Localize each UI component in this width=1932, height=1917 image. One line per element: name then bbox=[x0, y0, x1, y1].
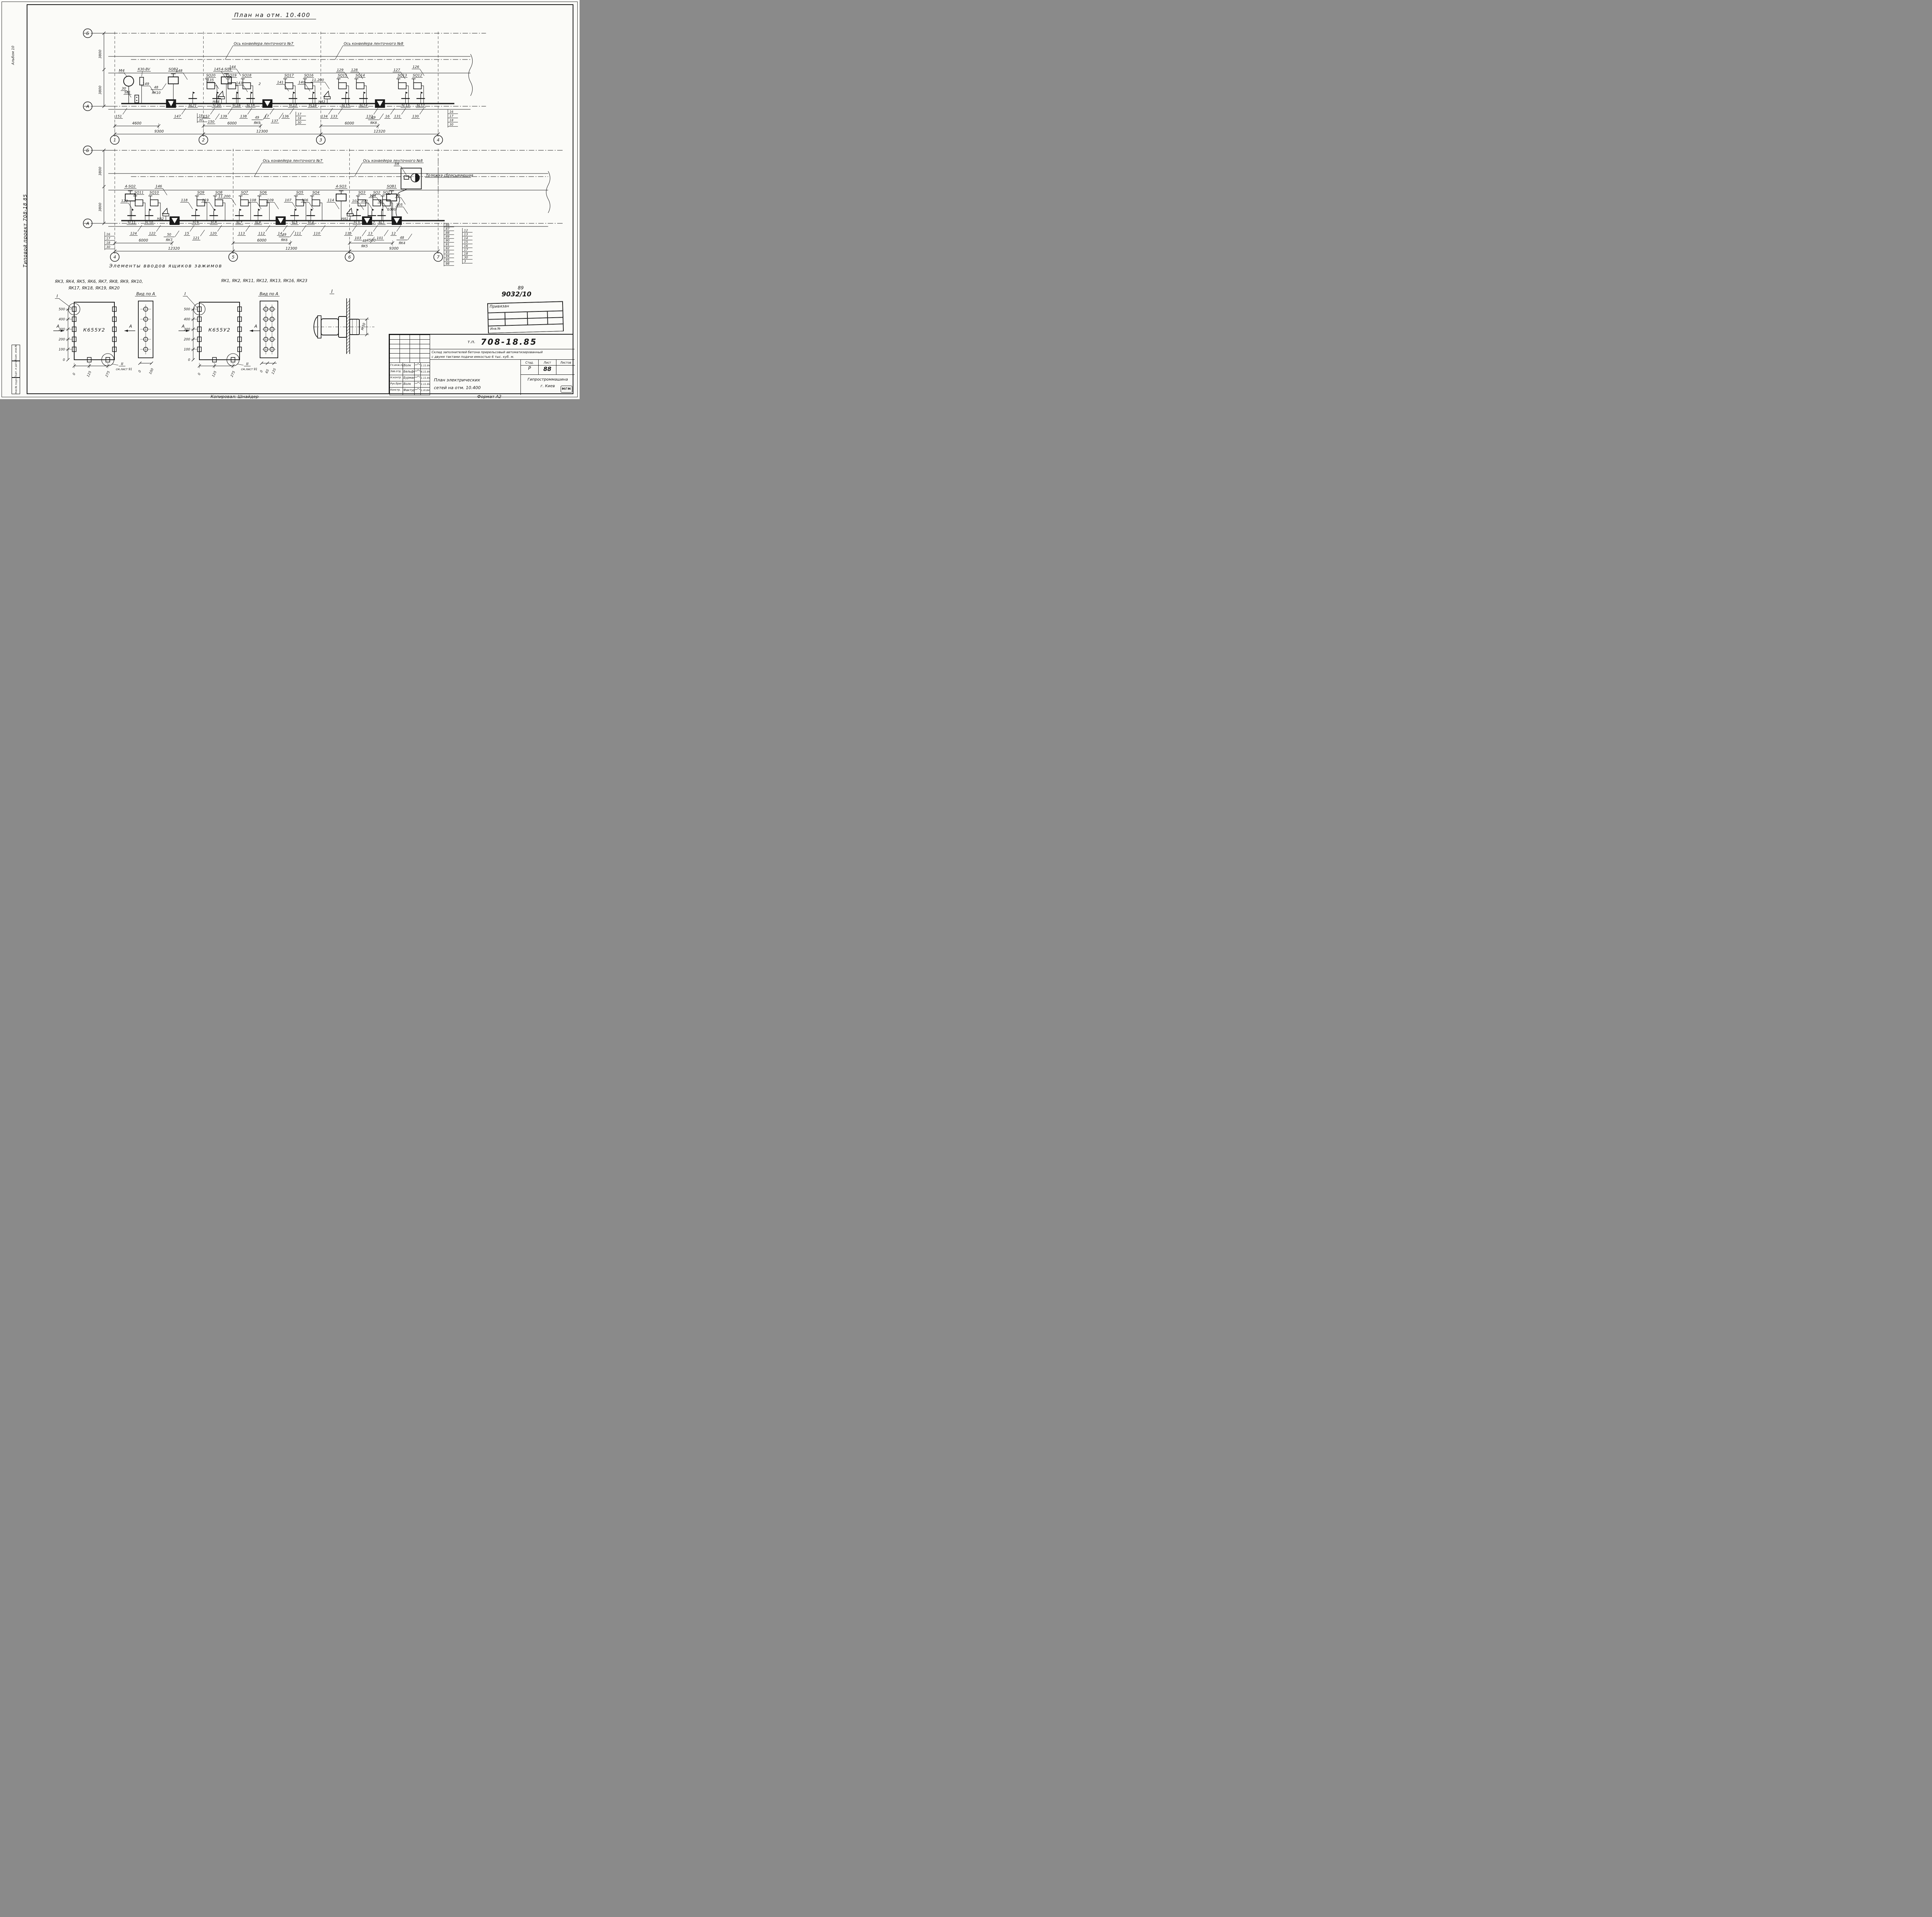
dimension-12300: 12300 bbox=[231, 247, 351, 254]
svg-text:SL11: SL11 bbox=[128, 221, 136, 225]
stage-sheet-table: Стад. Лист Листов Р 88 bbox=[520, 360, 575, 375]
sig-name: Фактурович bbox=[403, 387, 415, 395]
binding-stamp: ПривязанИнв.№ bbox=[487, 301, 564, 333]
svg-text:4: 4 bbox=[114, 255, 116, 260]
sheets-value bbox=[556, 366, 575, 375]
svg-text:49: 49 bbox=[282, 233, 286, 237]
svg-text:3800: 3800 bbox=[99, 202, 102, 211]
device-SL4: SL4 bbox=[306, 209, 315, 225]
svg-text:0: 0 bbox=[188, 358, 190, 362]
svg-text:SQ20: SQ20 bbox=[206, 74, 216, 78]
svg-text:К30-ВV: К30-ВV bbox=[138, 68, 151, 71]
row-dimension: 38003800 bbox=[99, 32, 105, 108]
project-description: Склад заполнителей бетона прирельсовый а… bbox=[430, 349, 575, 360]
code-prefix: т.п. bbox=[468, 339, 476, 344]
svg-text:SL7: SL7 bbox=[236, 221, 242, 225]
stamp-cell bbox=[488, 312, 505, 319]
svg-text:II: II bbox=[121, 362, 123, 366]
svg-text:100: 100 bbox=[184, 348, 190, 352]
revision-cell bbox=[410, 349, 420, 354]
svg-text:SL21: SL21 bbox=[189, 104, 197, 108]
svg-text:147: 147 bbox=[174, 115, 181, 119]
svg-text:108: 108 bbox=[250, 199, 256, 202]
svg-text:30: 30 bbox=[199, 118, 202, 122]
drawing-view-title: План на отм. 10.400 bbox=[232, 12, 316, 19]
svg-text:17: 17 bbox=[464, 248, 468, 252]
callout-147: 147 bbox=[173, 108, 186, 119]
svg-text:14: 14 bbox=[278, 232, 282, 236]
device-SL6: SL6 bbox=[254, 209, 262, 225]
svg-text:4-SQ2: 4-SQ2 bbox=[125, 185, 136, 189]
svg-text:0: 0 bbox=[72, 373, 77, 376]
revision-cell bbox=[410, 339, 420, 344]
svg-text:Вид по А: Вид по А bbox=[136, 292, 155, 296]
callout-141: 141 bbox=[276, 81, 289, 91]
svg-text:Б: Б bbox=[86, 31, 89, 36]
wire-number-stack: 171830 bbox=[296, 112, 306, 126]
svg-text:SL12: SL12 bbox=[417, 104, 425, 108]
break-line bbox=[469, 54, 473, 96]
svg-text:122: 122 bbox=[149, 232, 155, 236]
callout-139: 139 bbox=[219, 108, 232, 119]
svg-text:49: 49 bbox=[371, 116, 376, 120]
svg-text:Элементы вводов ящиков зажимов: Элементы вводов ящиков зажимов bbox=[109, 263, 223, 269]
device-ЯК6 bbox=[276, 216, 286, 225]
svg-text:106: 106 bbox=[302, 199, 308, 202]
svg-text:137: 137 bbox=[272, 119, 278, 123]
svg-text:К655У2: К655У2 bbox=[83, 327, 105, 333]
svg-text:М30: М30 bbox=[361, 322, 367, 331]
svg-text:SQ12: SQ12 bbox=[413, 74, 422, 78]
svg-text:400: 400 bbox=[59, 318, 65, 321]
device-SQ13: SQ13 bbox=[396, 74, 408, 104]
callout-122: 122 bbox=[148, 225, 160, 236]
svg-text:А: А bbox=[86, 221, 89, 226]
svg-text:110: 110 bbox=[314, 232, 320, 236]
svg-text:150: 150 bbox=[208, 120, 214, 124]
callout-11.200: 11.200 bbox=[311, 78, 329, 89]
svg-text:SL16: SL16 bbox=[309, 104, 317, 108]
device-SQ12: SQ12 bbox=[412, 74, 423, 104]
row-dimension: 38003800 bbox=[99, 149, 105, 225]
svg-text:SL20: SL20 bbox=[213, 104, 221, 108]
dimension-12320: 12320 bbox=[319, 129, 440, 137]
revision-cell bbox=[389, 339, 400, 344]
svg-text:Тележка сбрасывающая: Тележка сбрасывающая bbox=[426, 173, 473, 178]
svg-text:93: 93 bbox=[446, 250, 449, 254]
callout-114: 114 bbox=[327, 199, 339, 209]
gland-detail: IМ30 bbox=[313, 289, 374, 354]
svg-text:200: 200 bbox=[59, 338, 65, 342]
svg-text:SQ14: SQ14 bbox=[355, 74, 365, 78]
svg-text:SL14: SL14 bbox=[359, 104, 367, 108]
svg-text:см.лист 91: см.лист 91 bbox=[241, 367, 257, 371]
svg-text:0: 0 bbox=[260, 370, 264, 373]
svg-text:133: 133 bbox=[331, 115, 337, 119]
callout-13: 13 bbox=[367, 225, 378, 236]
wire-number-stack: 8687888990919293949598 bbox=[444, 223, 454, 266]
signature-scribble bbox=[414, 369, 421, 375]
terminal-box-details: Элементы вводов ящиков зажимовЯК3, ЯК4, … bbox=[27, 261, 398, 395]
svg-text:А: А bbox=[86, 104, 89, 109]
svg-text:400: 400 bbox=[184, 318, 190, 321]
plan-strip-2: БА380038004567Ось конвейера ленточного №… bbox=[27, 144, 573, 268]
svg-text:90: 90 bbox=[446, 239, 449, 242]
svg-text:SL9: SL9 bbox=[192, 221, 199, 225]
device-SL19: SL19 bbox=[231, 92, 241, 108]
svg-text:0: 0 bbox=[63, 358, 65, 362]
device-SL10: SL10 bbox=[144, 209, 154, 225]
svg-text:95: 95 bbox=[446, 258, 449, 262]
break-line bbox=[546, 171, 550, 213]
callout-137: 137 bbox=[271, 113, 283, 123]
svg-text:SL19: SL19 bbox=[232, 104, 240, 108]
svg-text:30: 30 bbox=[106, 245, 110, 249]
svg-text:146: 146 bbox=[155, 185, 162, 189]
callout-107: 107 bbox=[284, 199, 296, 209]
device-ЯК10 bbox=[166, 99, 176, 108]
svg-text:3800: 3800 bbox=[99, 85, 102, 94]
callout-112: 112 bbox=[257, 225, 270, 236]
svg-text:13: 13 bbox=[464, 233, 468, 236]
svg-text:88: 88 bbox=[446, 231, 449, 235]
organization: Гипростроммашина г. Киев МГМ bbox=[520, 375, 575, 395]
svg-text:18: 18 bbox=[106, 241, 110, 245]
yak-group-list-1: ЯК3, ЯК4, ЯК5, ЯК6, ЯК7, ЯК8, ЯК9, ЯК10,… bbox=[54, 279, 143, 291]
revision-cell bbox=[410, 353, 420, 358]
sig-role: Рук.бриг. bbox=[389, 381, 403, 388]
svg-text:НА3: НА3 bbox=[318, 100, 325, 104]
svg-text:140: 140 bbox=[298, 81, 305, 85]
svg-text:134: 134 bbox=[321, 115, 328, 119]
svg-text:Ось конвейера ленточного №8: Ось конвейера ленточного №8 bbox=[344, 42, 403, 46]
revision-cell bbox=[389, 349, 400, 354]
svg-text:136: 136 bbox=[282, 115, 289, 119]
device-ЯК8 bbox=[375, 99, 385, 108]
stamp-cell bbox=[505, 312, 527, 319]
svg-text:121: 121 bbox=[193, 236, 199, 240]
signature-icon bbox=[415, 363, 420, 367]
svg-text:SL2: SL2 bbox=[369, 221, 375, 225]
svg-text:89: 89 bbox=[446, 235, 449, 238]
revision-cell bbox=[389, 358, 400, 363]
callout-103: 103 bbox=[354, 230, 366, 240]
svg-text:12320: 12320 bbox=[168, 247, 180, 251]
sig-date: 1.11.84 bbox=[420, 362, 430, 369]
svg-text:127: 127 bbox=[393, 68, 400, 72]
svg-text:112: 112 bbox=[258, 232, 265, 236]
svg-text:103: 103 bbox=[355, 236, 361, 240]
svg-text:S81: S81 bbox=[124, 91, 131, 95]
stamp-cell bbox=[488, 319, 505, 326]
signature-icon bbox=[415, 388, 420, 391]
junction-box-label-ЯК4: 48ЯК4 bbox=[396, 234, 412, 245]
svg-text:99: 99 bbox=[378, 199, 383, 203]
svg-text:107: 107 bbox=[285, 199, 291, 202]
svg-text:98: 98 bbox=[446, 262, 449, 265]
svg-text:SL17: SL17 bbox=[289, 104, 298, 108]
svg-text:275: 275 bbox=[105, 371, 111, 378]
callout-106: 106 bbox=[301, 199, 313, 209]
svg-text:115: 115 bbox=[345, 232, 352, 236]
svg-text:102: 102 bbox=[352, 199, 359, 203]
svg-text:30: 30 bbox=[122, 87, 126, 91]
svg-text:124: 124 bbox=[130, 232, 137, 236]
svg-text:86: 86 bbox=[446, 223, 449, 227]
svg-text:6000: 6000 bbox=[345, 121, 354, 126]
device-SL17: SL17 bbox=[288, 92, 298, 108]
svg-text:SQ16: SQ16 bbox=[304, 74, 314, 78]
device-SL3: SL3 bbox=[352, 209, 361, 225]
sheet-value: 88 bbox=[539, 366, 556, 375]
stamp-cell bbox=[548, 311, 563, 318]
svg-text:12: 12 bbox=[464, 229, 468, 232]
svg-text:500: 500 bbox=[59, 308, 65, 311]
callout-2: 2 bbox=[259, 82, 261, 86]
svg-text:125: 125 bbox=[86, 371, 92, 378]
device-SL7: SL7 bbox=[235, 209, 243, 225]
device-ЯК9 bbox=[262, 99, 272, 108]
yak-group-list-2: ЯК1, ЯК2, ЯК11, ЯК12, ЯК13, ЯК16, ЯК23 bbox=[221, 279, 307, 283]
callout-152: 152 bbox=[202, 108, 214, 119]
callout-111: 111 bbox=[294, 225, 306, 236]
stage-header: Стад. bbox=[521, 360, 539, 366]
signature-scribble bbox=[414, 381, 421, 388]
grid-row-Б: Б bbox=[83, 146, 115, 155]
dimension-12320: 12320 bbox=[113, 247, 235, 254]
svg-text:4: 4 bbox=[437, 138, 440, 143]
device-SL16: SL16 bbox=[308, 92, 318, 108]
svg-text:16: 16 bbox=[464, 244, 468, 248]
svg-text:Ось конвейера ленточного №7: Ось конвейера ленточного №7 bbox=[263, 159, 322, 163]
svg-text:6: 6 bbox=[348, 255, 351, 260]
sig-role: Гл.инж.пр. bbox=[389, 362, 403, 369]
title-block-main: т.п. 708-18.85 Склад заполнителей бетона… bbox=[430, 335, 574, 395]
sig-name: Бельфор bbox=[403, 369, 415, 375]
svg-text:Б: Б bbox=[86, 148, 89, 153]
callout-118: 118 bbox=[180, 199, 192, 209]
svg-text:143: 143 bbox=[236, 82, 243, 85]
plan-strip-1: БА380038001234Ось конвейера ленточного №… bbox=[27, 27, 573, 151]
svg-text:5Я: 5Я bbox=[395, 162, 399, 166]
view-po-a-2: Вид по А065135 bbox=[258, 292, 279, 375]
svg-text:SQ5: SQ5 bbox=[296, 191, 303, 195]
revision-cell bbox=[420, 358, 430, 363]
sig-name: Волк bbox=[403, 362, 415, 369]
device-SL5: SL5 bbox=[290, 209, 299, 225]
svg-text:SQ8: SQ8 bbox=[215, 191, 223, 195]
sig-name: Бурман bbox=[403, 375, 415, 381]
title-block: Гл.инж.пр.Волк1.11.84Зав.отд.Бельфор6.11… bbox=[389, 334, 573, 394]
drawing-sheet: План на отм. 10.400 Альбом 10 Типовой пр… bbox=[0, 0, 580, 399]
callout-130: 130 bbox=[412, 108, 424, 119]
sheets-header: Листов bbox=[556, 360, 575, 366]
svg-text:0: 0 bbox=[197, 373, 202, 376]
svg-text:111: 111 bbox=[294, 232, 301, 236]
sig-date: 6.11.84 bbox=[420, 369, 430, 375]
svg-text:SL1: SL1 bbox=[379, 221, 385, 225]
svg-text:30: 30 bbox=[464, 256, 468, 259]
svg-text:II: II bbox=[246, 362, 248, 366]
svg-text:17: 17 bbox=[449, 114, 454, 118]
revision-cell bbox=[420, 344, 430, 349]
svg-text:18: 18 bbox=[449, 119, 453, 122]
device-SL13: SL13 bbox=[401, 92, 410, 108]
svg-text:SL3: SL3 bbox=[354, 221, 360, 225]
svg-text:113: 113 bbox=[238, 232, 245, 236]
svg-text:12300: 12300 bbox=[286, 247, 297, 251]
callout-110: 110 bbox=[313, 225, 325, 236]
svg-text:Вид по А: Вид по А bbox=[260, 292, 278, 296]
svg-text:ЯК7: ЯК7 bbox=[165, 238, 173, 242]
signature-icon bbox=[415, 369, 420, 373]
svg-text:SL4: SL4 bbox=[308, 221, 314, 225]
device-SQ15: SQ15 bbox=[337, 74, 349, 104]
dimension-6000: 6000 bbox=[113, 238, 173, 246]
svg-text:SQ4: SQ4 bbox=[312, 191, 320, 195]
signature-icon bbox=[415, 381, 420, 385]
device-НА1: НА1 bbox=[341, 208, 353, 221]
svg-text:ЯК8: ЯК8 bbox=[370, 121, 377, 125]
callout-140: 140 bbox=[298, 81, 310, 91]
callout-131: 131 bbox=[393, 108, 406, 119]
device-SL9: SL9 bbox=[191, 209, 200, 225]
svg-text:30: 30 bbox=[298, 121, 301, 124]
revision-cell bbox=[389, 335, 400, 340]
grid-row-Б: Б bbox=[83, 29, 115, 38]
svg-text:7: 7 bbox=[437, 255, 440, 260]
svg-text:2: 2 bbox=[259, 82, 261, 86]
svg-text:48: 48 bbox=[362, 239, 367, 243]
svg-text:9300: 9300 bbox=[155, 129, 164, 134]
copied-by: Копировал: Шнайдер bbox=[211, 394, 259, 399]
svg-text:ЯК3, ЯК4, ЯК5, ЯК6, ЯК7, ЯК8,: ЯК3, ЯК4, ЯК5, ЯК6, ЯК7, ЯК8, ЯК9, ЯК10, bbox=[54, 279, 143, 284]
svg-text:SL10: SL10 bbox=[145, 221, 153, 225]
device-НА2: НА2 bbox=[156, 208, 169, 221]
signature-scribble bbox=[414, 362, 421, 369]
device-SQ7: SQ7 bbox=[239, 191, 251, 221]
svg-text:149: 149 bbox=[143, 82, 149, 86]
callout-136: 136 bbox=[281, 108, 294, 119]
device-SQ18: SQ18 bbox=[241, 74, 253, 104]
svg-text:145: 145 bbox=[214, 68, 221, 71]
discharge-trolley: 5ЯТележка сбрасывающая bbox=[394, 158, 473, 216]
callout-1000: 1000 bbox=[387, 208, 396, 212]
svg-text:94: 94 bbox=[446, 254, 449, 258]
svg-text:НА2: НА2 bbox=[157, 217, 164, 221]
svg-text:131: 131 bbox=[394, 115, 401, 119]
device-НА4: НА4 bbox=[212, 91, 224, 104]
junction-box-label-ЯК10: 48ЯК10 bbox=[151, 83, 166, 95]
callout-113: 113 bbox=[238, 225, 250, 236]
corner-number-top: 89 bbox=[518, 285, 524, 291]
svg-text:123: 123 bbox=[121, 199, 128, 203]
device-SQ10: SQ10 bbox=[148, 191, 160, 221]
revision-cell bbox=[400, 349, 410, 354]
svg-text:4600: 4600 bbox=[132, 121, 141, 126]
conveyor-axis-label: Ось конвейера ленточного №7 bbox=[254, 159, 323, 177]
svg-text:91: 91 bbox=[446, 243, 449, 246]
callout-16: 16 bbox=[384, 108, 395, 119]
svg-text:14: 14 bbox=[464, 236, 468, 240]
svg-text:К655У2: К655У2 bbox=[208, 327, 230, 333]
svg-text:3800: 3800 bbox=[99, 167, 102, 175]
sig-date: 1.XI.84 bbox=[420, 387, 430, 395]
svg-text:135: 135 bbox=[207, 78, 214, 82]
svg-text:148: 148 bbox=[176, 69, 182, 73]
svg-text:А: А bbox=[254, 324, 257, 329]
stamp-cell bbox=[527, 311, 548, 318]
svg-text:НА1: НА1 bbox=[342, 217, 349, 221]
svg-text:6000: 6000 bbox=[227, 121, 236, 126]
svg-text:17: 17 bbox=[298, 112, 302, 116]
signature-scribble bbox=[414, 375, 421, 381]
margin-box-inv: Инв.№ подл. bbox=[12, 378, 20, 394]
signature-scribble bbox=[414, 387, 421, 395]
svg-text:SQ18: SQ18 bbox=[242, 74, 252, 78]
device-SQ4: SQ4 bbox=[310, 191, 322, 221]
device-SL15: SL15 bbox=[341, 92, 350, 108]
svg-text:138: 138 bbox=[240, 115, 247, 119]
svg-text:18: 18 bbox=[464, 252, 468, 255]
device-SL21: SL21 bbox=[188, 92, 197, 108]
stage-value: Р bbox=[521, 366, 539, 375]
svg-text:125: 125 bbox=[211, 371, 218, 378]
svg-text:ЯК17, ЯК18, ЯК19, ЯК20: ЯК17, ЯК18, ЯК19, ЯК20 bbox=[68, 286, 120, 291]
revision-cell bbox=[400, 344, 410, 349]
stamp-cell bbox=[548, 317, 563, 324]
svg-text:151: 151 bbox=[115, 115, 122, 119]
callout-120: 120 bbox=[209, 225, 222, 236]
svg-text:Ось конвейера ленточного №7: Ось конвейера ленточного №7 bbox=[234, 42, 293, 46]
paper-format: Формат А2 bbox=[477, 394, 502, 399]
svg-text:SQ6: SQ6 bbox=[260, 191, 267, 195]
svg-text:30: 30 bbox=[449, 123, 453, 126]
device-НА3: НА3 bbox=[318, 91, 330, 104]
org-logo-icon: МГМ bbox=[561, 386, 572, 393]
wire-number-stack: 16171830 bbox=[448, 109, 458, 128]
callout-121: 121 bbox=[192, 230, 204, 240]
svg-text:I: I bbox=[56, 294, 58, 299]
svg-text:ЯК1, ЯК2, ЯК11, ЯК12, ЯК13, ЯК: ЯК1, ЯК2, ЯК11, ЯК12, ЯК13, ЯК16, ЯК23 bbox=[221, 279, 307, 283]
svg-text:275: 275 bbox=[230, 371, 236, 378]
revision-cell bbox=[400, 335, 410, 340]
conveyor-axis-label: Ось конвейера ленточного №8 bbox=[335, 42, 404, 60]
svg-text:SL15: SL15 bbox=[342, 104, 350, 108]
revision-cell bbox=[420, 339, 430, 344]
svg-text:92: 92 bbox=[446, 247, 449, 250]
wire-number-stack: 16171830 bbox=[105, 232, 115, 250]
callout-119: 119 bbox=[201, 199, 214, 209]
margin-album-label: Альбом 10 bbox=[12, 46, 15, 65]
svg-text:104: 104 bbox=[369, 194, 376, 198]
device-ЯК4 bbox=[392, 216, 402, 225]
svg-text:3: 3 bbox=[464, 260, 466, 263]
callout-115: 115 bbox=[344, 225, 357, 236]
svg-text:48: 48 bbox=[400, 236, 404, 240]
sig-role: Зав.отд. bbox=[389, 369, 403, 375]
svg-text:М4: М4 bbox=[119, 69, 124, 73]
svg-text:SL18: SL18 bbox=[247, 104, 255, 108]
svg-text:6000: 6000 bbox=[257, 238, 266, 243]
device-SL1: SL1 bbox=[378, 209, 386, 225]
svg-text:3800: 3800 bbox=[99, 49, 102, 58]
stamp-cell bbox=[505, 318, 527, 326]
svg-text:ЯК4: ЯК4 bbox=[398, 242, 405, 245]
revision-cell bbox=[400, 358, 410, 363]
svg-text:А: А bbox=[181, 324, 185, 329]
device-SQ9: SQ9 bbox=[195, 191, 207, 221]
